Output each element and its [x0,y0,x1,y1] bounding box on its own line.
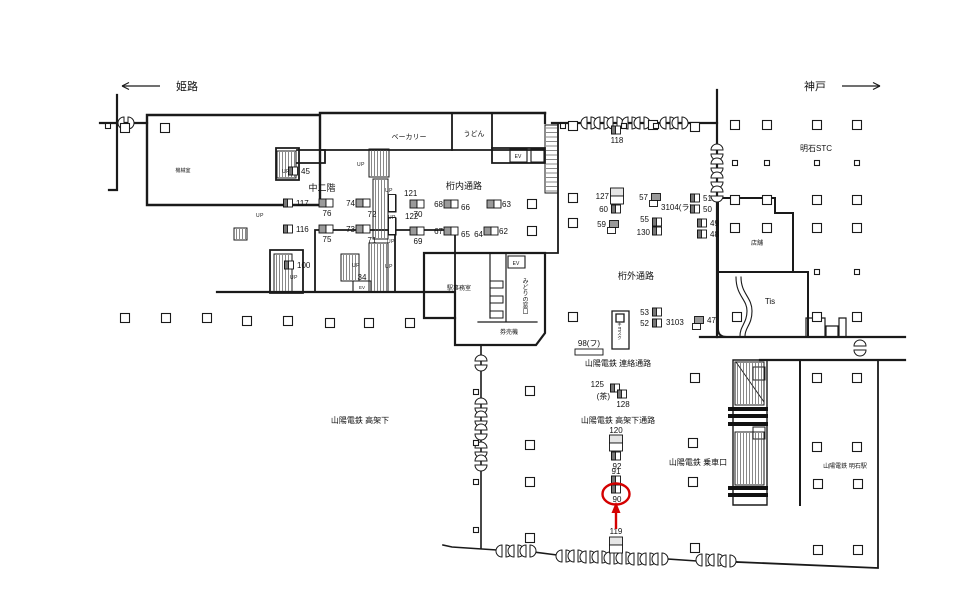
area-label: 山陽電鉄 連絡通路 [585,358,651,368]
ad-number: 57 [639,193,648,202]
ad-box [494,200,501,208]
ad-box [451,200,458,208]
door-icon [711,144,723,150]
ad-box [698,219,702,227]
door-icon [496,545,502,557]
ad-box [451,227,458,235]
column-square [815,161,820,166]
wall [100,95,147,190]
ad-number: 45 [301,167,310,176]
ad-number: 52 [640,319,649,328]
area-label: みどりの窓口 [521,278,528,315]
area-label: 券売機 [500,328,518,336]
ad-box [363,225,370,233]
ad-box [417,227,424,235]
column-square [853,224,862,233]
ad-box [444,200,451,208]
wall [545,123,558,253]
door-icon [475,355,487,361]
ad-number: 98(フ) [578,339,601,348]
area-label: 機械室 [175,167,190,174]
column-square [526,534,535,543]
column-square [474,390,479,395]
ad-box [610,537,623,545]
ad-box [653,308,657,316]
column-square [689,439,698,448]
ad-box [610,443,623,451]
up-label: UP [256,213,264,219]
door-icon [475,465,487,471]
column-square [813,121,822,130]
column-square [691,544,700,553]
column-square [855,161,860,166]
area-label: ベーカリー [392,133,427,141]
door-icon [696,554,702,566]
ticket-gate [490,281,503,318]
ad-number: 117 [296,199,309,208]
stair-landing [753,367,765,439]
ad-number: 50 [703,205,712,214]
ad-box [611,188,624,196]
escalator-bar [728,422,768,426]
column-square [853,443,862,452]
ad-number: 118 [611,136,624,145]
stair-hatch [234,228,247,240]
wall [718,198,793,272]
column-square [854,480,863,489]
ad-number: 65 [461,230,470,239]
column-square [569,219,578,228]
column-square [853,121,862,130]
up-label: UP [385,188,393,194]
station-floor-plan: 4511711676757472737110034121122706968666… [0,0,960,605]
ad-box [487,200,494,208]
ad-number: 59 [597,220,606,229]
area-label: Tis [765,297,775,306]
ad-number: (茶) [597,391,611,401]
column-square [622,124,627,129]
ad-number: 128 [616,400,630,409]
stair-hatch [545,125,558,193]
ad-number: 71 [368,236,377,245]
ad-markers-layer: 4511711676757472737110034121122706968666… [284,126,720,553]
column-square [765,161,770,166]
ad-box [612,126,616,134]
ad-box [356,199,363,207]
column-square [203,314,212,323]
direction-label: 姫路 [176,79,198,93]
column-square [569,313,578,322]
ad-box [319,199,326,207]
ad-box [444,227,451,235]
column-square [326,319,335,328]
escalator-bar [728,407,768,411]
door-symbols-layer [118,117,866,567]
facility-label: EV [513,261,520,267]
ad-number: 130 [637,228,651,237]
column-square [691,123,700,132]
column-square [763,121,772,130]
door-icon [662,553,668,565]
ad-box [695,317,704,324]
column-square [526,478,535,487]
column-square [813,196,822,205]
ad-box [611,384,615,392]
ad-number: 116 [296,225,309,234]
ad-number: 47 [707,316,716,325]
ad-number: 63 [502,200,511,209]
ad-number: 72 [368,210,377,219]
ad-box [610,545,623,553]
ad-box [612,485,616,493]
ad-box [608,228,616,234]
column-square [691,374,700,383]
column-square [528,200,537,209]
ad-box [612,205,616,213]
column-square [853,374,862,383]
column-square [815,270,820,275]
door-icon [581,117,587,129]
ad-box [611,196,624,204]
ad-number: 67 [434,227,443,236]
ad-number: 125 [591,380,605,389]
ad-box [693,324,701,330]
column-square [813,224,822,233]
wall [270,250,303,293]
ad-box [356,225,363,233]
ad-number: 100 [297,261,311,270]
column-square [853,196,862,205]
area-label: 山陽電鉄 高架下 [331,415,389,425]
ad-box [410,200,417,208]
door-icon [475,365,487,371]
column-square [733,161,738,166]
column-square [561,124,566,129]
up-label: UP [352,263,360,269]
area-label: キヨスク [618,322,623,340]
ad-box [326,199,333,207]
area-label: 山陽電鉄 乗車口 [669,457,727,467]
area-label: 山陽電鉄 明石駅 [823,462,867,470]
column-square [106,124,111,129]
column-square [654,124,659,129]
column-square [814,546,823,555]
up-label: UP [388,215,396,221]
facility-label: EV [359,285,365,290]
door-icon [475,398,487,404]
ad-box [326,225,333,233]
wall [718,272,808,337]
up-label: UP [357,162,365,168]
column-square [854,546,863,555]
column-square [526,441,535,450]
column-square [813,374,822,383]
stair-hatch [369,149,389,177]
column-square [406,319,415,328]
up-label: UP [282,169,290,175]
ad-number: 73 [346,225,355,234]
ad-number: 3104(ラ) [661,203,692,212]
ad-box [653,227,657,235]
ad-number: 64 [474,230,483,239]
column-square [569,194,578,203]
floor-plan-svg: 4511711676757472737110034121122706968666… [0,0,960,605]
ad-number: 127 [596,192,610,201]
ad-box [691,194,695,202]
column-square [731,224,740,233]
column-square [733,313,742,322]
column-square [853,313,862,322]
column-square [474,480,479,485]
ad-number: 60 [599,205,608,214]
ad-box [491,227,498,235]
ad-number: 74 [346,199,355,208]
ad-number: 34 [358,273,367,282]
ad-box [363,199,370,207]
column-square [731,196,740,205]
ad-number: 68 [434,200,443,209]
stairs-hatch-layer [234,125,764,485]
column-square [731,121,740,130]
ad-box [484,227,491,235]
column-square [365,319,374,328]
column-square [162,314,171,323]
ad-number: 55 [640,215,649,224]
door-icon [682,117,688,129]
escalator-bar [728,493,768,497]
escalator-bar [728,414,768,418]
ad-number: 121 [404,189,418,198]
ad-number: 91 [612,467,621,476]
column-square [474,441,479,446]
ad-number: 51 [703,194,712,203]
ad-number: 3103 [666,318,684,327]
ad-box [653,319,657,327]
column-square [814,480,823,489]
ad-box [284,225,288,233]
door-icon [530,545,536,557]
door-icon [660,117,666,129]
up-label: UP [387,239,395,245]
column-square [813,313,822,322]
ad-number: 66 [461,203,470,212]
ad-box [610,221,619,228]
escalator-bars-layer [728,407,768,497]
column-square [243,317,252,326]
door-icon [475,434,487,440]
door-icon [711,196,723,202]
ad-number: 120 [609,426,623,435]
column-square [855,270,860,275]
ad-number: 70 [414,210,423,219]
direction-label: 神戸 [804,79,826,93]
door-icon [730,555,736,567]
area-label: 山陽電鉄 高架下通路 [581,415,655,425]
column-square [161,124,170,133]
ad-box [319,225,326,233]
column-square [813,443,822,452]
ad-box [610,435,623,443]
area-label: 店舗 [751,239,763,247]
door-icon [556,550,562,562]
area-label: 中二階 [308,182,335,193]
column-square [763,224,772,233]
ad-box [575,349,603,355]
column-square [526,387,535,396]
ad-box [691,205,695,213]
walls-layer [100,90,905,568]
area-label: 桁外通路 [618,270,654,281]
area-label: うどん [464,130,485,138]
wall [700,337,905,360]
ad-number: 48 [710,230,719,239]
area-label: 駅事務室 [447,284,471,292]
escalator-bar [728,486,768,490]
door-icon [854,340,866,346]
column-square [689,478,698,487]
ad-number: 75 [323,235,332,244]
wall [217,292,455,318]
ad-box [284,199,288,207]
up-label: UP [385,264,393,270]
ad-box [417,200,424,208]
area-label: 桁内通路 [446,180,482,191]
ad-number: 69 [414,237,423,246]
ad-box [612,452,616,460]
ad-box [618,390,622,398]
column-square [121,124,130,133]
ad-box [285,261,289,269]
ad-number: 76 [323,209,332,218]
ad-box [653,218,657,226]
ad-number: 49 [710,219,719,228]
column-square [763,196,772,205]
ad-number: 53 [640,308,649,317]
column-square [121,314,130,323]
ad-number: 90 [613,495,622,504]
ad-box [652,194,661,201]
ad-box [410,227,417,235]
ad-box [650,201,658,207]
ad-box [698,230,702,238]
ad-number: 62 [499,227,508,236]
column-square [528,227,537,236]
ad-box [389,195,396,212]
up-label: UP [290,275,298,281]
column-square [284,317,293,326]
column-square [474,528,479,533]
facility-label: EV [515,154,522,160]
column-square [569,122,578,131]
area-label: 明石STC [800,144,832,153]
door-icon [854,350,866,356]
tis-curve [736,277,747,336]
wall [147,115,320,205]
